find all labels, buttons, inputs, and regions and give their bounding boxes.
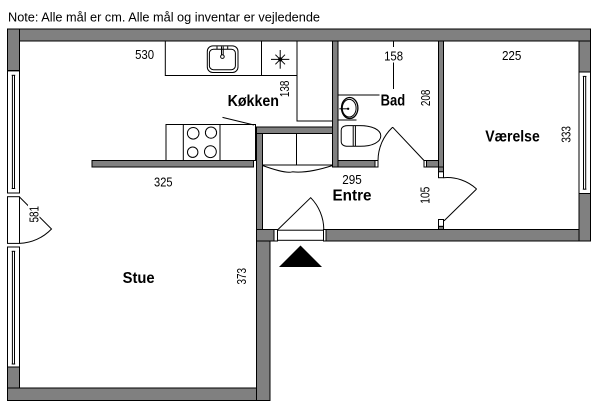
svg-text:295: 295 — [342, 173, 362, 187]
svg-text:158: 158 — [384, 49, 403, 63]
svg-text:208: 208 — [419, 90, 433, 107]
svg-text:105: 105 — [418, 187, 432, 204]
svg-text:373: 373 — [235, 268, 249, 285]
svg-text:Værelse: Værelse — [485, 129, 540, 146]
svg-text:225: 225 — [502, 49, 522, 63]
svg-text:530: 530 — [135, 48, 154, 62]
svg-text:Bad: Bad — [381, 93, 406, 110]
svg-text:333: 333 — [560, 126, 574, 143]
svg-text:581: 581 — [28, 206, 42, 223]
svg-text:Stue: Stue — [123, 270, 155, 287]
svg-text:Entre: Entre — [333, 187, 372, 204]
svg-text:325: 325 — [154, 175, 173, 189]
svg-text:Note: Alle mål er cm. Alle mål: Note: Alle mål er cm. Alle mål og invent… — [8, 10, 320, 25]
svg-text:138: 138 — [278, 81, 292, 98]
svg-text:Køkken: Køkken — [228, 93, 279, 110]
